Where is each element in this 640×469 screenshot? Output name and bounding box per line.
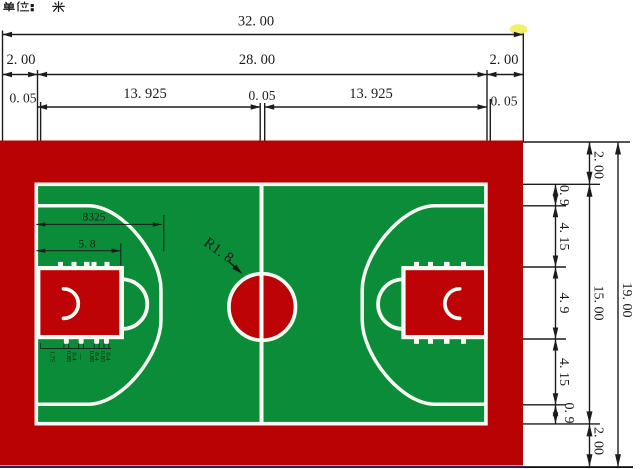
svg-text:19. 00: 19. 00 — [619, 283, 634, 318]
svg-text:0.4: 0.4 — [93, 352, 100, 361]
svg-text:32. 00: 32. 00 — [238, 14, 274, 30]
svg-text:8325: 8325 — [83, 212, 106, 224]
svg-text:5. 8: 5. 8 — [78, 239, 96, 251]
svg-text:0. 9: 0. 9 — [561, 403, 576, 424]
svg-text:0.4: 0.4 — [104, 352, 111, 361]
svg-text:4. 15: 4. 15 — [556, 223, 571, 251]
svg-text:0. 05: 0. 05 — [249, 88, 276, 103]
svg-text:2. 00: 2. 00 — [591, 151, 606, 179]
svg-text:0. 05: 0. 05 — [10, 91, 37, 106]
svg-text:13. 925: 13. 925 — [123, 86, 167, 102]
svg-text:0.4: 0.4 — [71, 352, 78, 361]
svg-text:2. 00: 2. 00 — [490, 52, 519, 68]
svg-text:15. 00: 15. 00 — [591, 286, 606, 321]
svg-text:1.75: 1.75 — [49, 351, 56, 363]
svg-text:—: — — [78, 352, 85, 360]
svg-text:13. 925: 13. 925 — [349, 86, 393, 102]
svg-text:0. 9: 0. 9 — [556, 185, 571, 206]
svg-text:0. 05: 0. 05 — [491, 94, 518, 109]
svg-text:2. 00: 2. 00 — [7, 52, 36, 68]
svg-text:4. 15: 4. 15 — [556, 358, 571, 386]
svg-text:4. 9: 4. 9 — [556, 293, 571, 314]
svg-text:2. 00: 2. 00 — [591, 427, 606, 455]
svg-text:28. 00: 28. 00 — [239, 52, 275, 68]
